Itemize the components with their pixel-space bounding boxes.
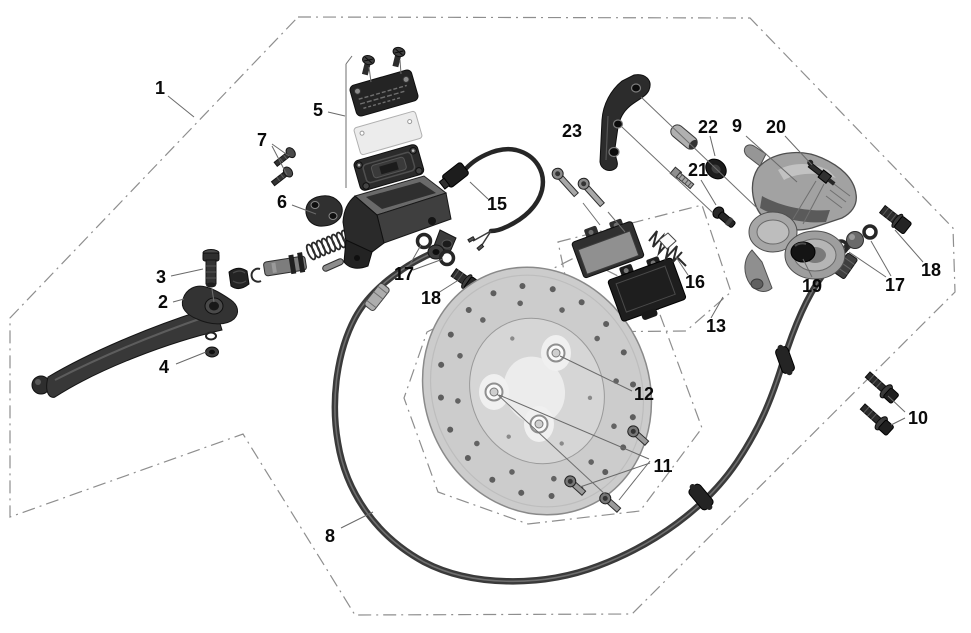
- caliper-mount-bolts: [857, 369, 900, 438]
- slide-pin: [711, 205, 738, 230]
- callout-label-6: 6: [277, 192, 287, 212]
- assembly-line: [369, 67, 371, 82]
- callout-label-5: 5: [313, 100, 323, 120]
- lever-washer-and-nut: [206, 333, 219, 358]
- leader-line-15: [470, 182, 488, 199]
- caliper-bracket: [600, 75, 650, 171]
- callout-label-17a: 17: [394, 264, 414, 284]
- leader-line-22: [710, 136, 715, 156]
- exploded-diagram: 123456789101112131516171817181920212223: [0, 0, 971, 633]
- assembly-line: [583, 203, 600, 225]
- callout-label-15: 15: [487, 194, 507, 214]
- leader-line-21: [701, 180, 716, 205]
- leader-line-13: [711, 297, 723, 318]
- callout-label-21: 21: [688, 160, 708, 180]
- callout-label-20: 20: [766, 117, 786, 137]
- callout-label-19: 19: [802, 276, 822, 296]
- brake-lever: [32, 286, 238, 397]
- callout-label-12: 12: [634, 384, 654, 404]
- brake-caliper: [744, 145, 856, 292]
- leader-line-4: [176, 352, 206, 364]
- callout-label-17b: 17: [885, 275, 905, 295]
- callout-label-2: 2: [158, 292, 168, 312]
- callout-label-7: 7: [257, 130, 267, 150]
- piston-spring-group: [263, 229, 352, 278]
- callout-label-16: 16: [685, 272, 705, 292]
- assembly-line: [641, 97, 757, 208]
- hose-banjo-ball: [847, 232, 864, 249]
- callout-label-23: 23: [562, 121, 582, 141]
- callout-label-13: 13: [706, 316, 726, 336]
- pad-pins: [550, 166, 607, 208]
- callout-label-22: 22: [698, 117, 718, 137]
- diagram-canvas: 123456789101112131516171817181920212223: [0, 0, 971, 633]
- leader-line-3: [171, 269, 203, 276]
- leader-line-10: [891, 418, 905, 425]
- reservoir-cap: [349, 69, 419, 117]
- callout-label-8: 8: [325, 526, 335, 546]
- callout-label-1: 1: [155, 78, 165, 98]
- callout-label-4: 4: [159, 357, 169, 377]
- leader-line-1: [168, 96, 194, 117]
- callout-label-11: 11: [653, 456, 672, 476]
- leader-line-17b: [871, 241, 891, 276]
- callout-label-3: 3: [156, 267, 166, 287]
- leader-line-18b: [895, 230, 923, 262]
- callout-label-10: 10: [908, 408, 928, 428]
- callout-label-18b: 18: [921, 260, 941, 280]
- pivot-bolt-group: [203, 250, 261, 289]
- callout-label-18a: 18: [421, 288, 441, 308]
- leader-line-5: [328, 112, 345, 116]
- assembly-line: [346, 56, 352, 64]
- slider-sleeve: [668, 122, 700, 152]
- handlebar-clamp: [306, 196, 342, 226]
- leader-line-8: [341, 512, 373, 528]
- callout-label-9: 9: [732, 116, 742, 136]
